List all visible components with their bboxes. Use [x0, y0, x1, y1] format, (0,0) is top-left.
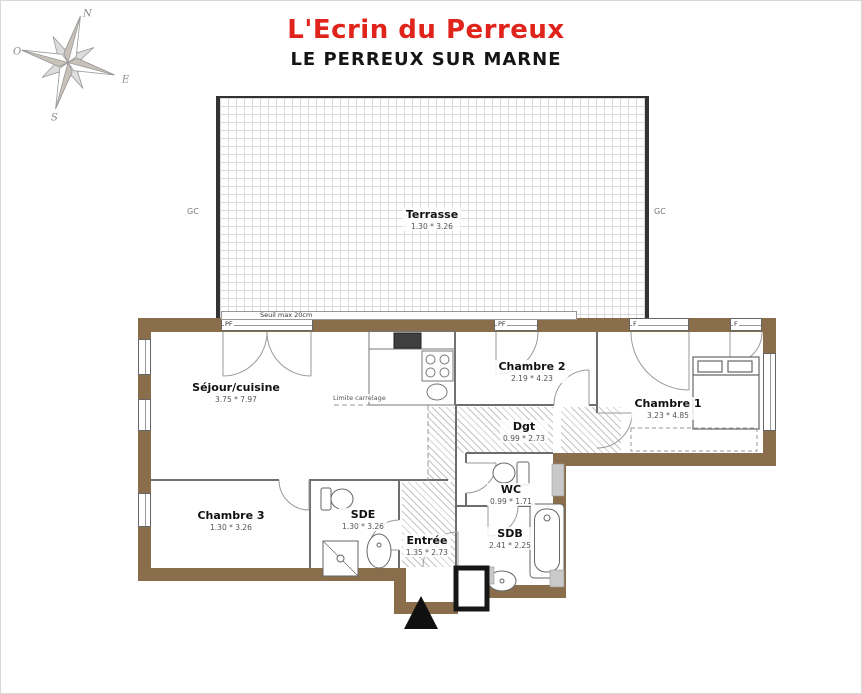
hatch-chambre1-entry — [561, 407, 621, 453]
title-block: L'Ecrin du Perreux LE PERREUX SUR MARNE — [287, 15, 564, 70]
project-subtitle: LE PERREUX SUR MARNE — [287, 49, 564, 70]
sdb-name: SDB — [489, 527, 531, 540]
room-label-chambre1: Chambre 1 3.23 * 4.85 — [631, 397, 704, 420]
floorplan-canvas: N O E S L'Ecrin du Perreux LE PERREUX SU… — [0, 0, 862, 694]
wc-dims: 0.99 * 1.71 — [490, 497, 532, 506]
window-f-chambre1-left-label: F — [632, 319, 638, 330]
window-sejour-left-1 — [138, 339, 151, 375]
window-chambre1-right — [763, 353, 776, 431]
room-label-dgt: Dgt 0.99 * 2.73 — [500, 420, 548, 443]
room-label-chambre2: Chambre 2 2.19 * 4.23 — [495, 360, 568, 383]
room-label-wc: WC 0.99 * 1.71 — [487, 483, 535, 506]
chambre3-dims: 1.30 * 3.26 — [197, 523, 264, 532]
window-pf-sejour-label: PF — [224, 319, 234, 330]
entree-dims: 1.35 * 2.73 — [406, 548, 448, 557]
gc-left-label: GC — [187, 207, 199, 216]
sde-dims: 1.30 * 3.26 — [342, 522, 384, 531]
wall-bottom-left — [138, 568, 396, 581]
window-chambre3-left — [138, 493, 151, 527]
threshold-strip: Seuil max 20cm — [221, 311, 577, 320]
wall-chambre1-bottom — [553, 453, 776, 466]
compass-rose-icon: N O E S — [5, 1, 140, 126]
tile-limit-note: Limite carrelage — [333, 394, 386, 402]
chambre2-name: Chambre 2 — [498, 360, 565, 373]
dgt-name: Dgt — [503, 420, 545, 433]
compass-north-label: N — [82, 9, 93, 20]
room-label-sdb: SDB 2.41 * 2.25 — [486, 527, 534, 550]
window-pf-chambre2-label: PF — [497, 319, 507, 330]
wc-name: WC — [490, 483, 532, 496]
room-label-sejour: Séjour/cuisine 3.75 * 7.97 — [189, 381, 283, 404]
compass-east-label: E — [121, 75, 130, 86]
toilet-wc-icon — [493, 462, 529, 485]
chambre1-name: Chambre 1 — [634, 397, 701, 410]
sejour-dims: 3.75 * 7.97 — [192, 395, 280, 404]
terrasse-dims: 1.30 * 3.26 — [406, 222, 458, 231]
sejour-name: Séjour/cuisine — [192, 381, 280, 394]
threshold-note: Seuil max 20cm — [260, 312, 312, 319]
terrasse-name: Terrasse — [406, 208, 458, 221]
sde-name: SDE — [342, 508, 384, 521]
chambre3-name: Chambre 3 — [197, 509, 264, 522]
compass-west-label: O — [13, 47, 21, 58]
kitchen-sink-bowl — [427, 384, 447, 400]
gc-right-label: GC — [654, 207, 666, 216]
tile-limit-line — [334, 405, 428, 481]
dgt-dims: 0.99 * 2.73 — [503, 434, 545, 443]
wall-entry-bottom — [394, 602, 458, 614]
chambre1-dims: 3.23 * 4.85 — [634, 411, 701, 420]
room-label-entree: Entrée 1.35 * 2.73 — [403, 534, 451, 557]
chambre2-dims: 2.19 * 4.23 — [498, 374, 565, 383]
washbasin-sde-icon — [367, 534, 391, 568]
window-f-chambre1-right: F — [730, 318, 762, 331]
toilet-sde-icon — [321, 488, 353, 510]
entree-name: Entrée — [406, 534, 448, 547]
room-label-sde: SDE 1.30 * 3.26 — [339, 508, 387, 531]
compass-south-label: S — [51, 113, 58, 124]
hob-icon — [422, 351, 453, 381]
wardrobe-outline — [631, 428, 757, 451]
wall-sdb-right — [553, 453, 566, 598]
sdb-dims: 2.41 * 2.25 — [489, 541, 531, 550]
front-door-frame — [456, 568, 487, 609]
window-sejour-left-2 — [138, 399, 151, 431]
project-title: L'Ecrin du Perreux — [287, 15, 564, 45]
hatch-corridor — [428, 407, 456, 480]
room-label-terrasse: Terrasse 1.30 * 3.26 — [403, 208, 461, 231]
room-label-chambre3: Chambre 3 1.30 * 3.26 — [194, 509, 267, 532]
window-f-chambre1-right-label: F — [733, 319, 739, 330]
window-f-chambre1-left: F — [629, 318, 689, 331]
kitchen-sink-icon — [394, 333, 421, 348]
